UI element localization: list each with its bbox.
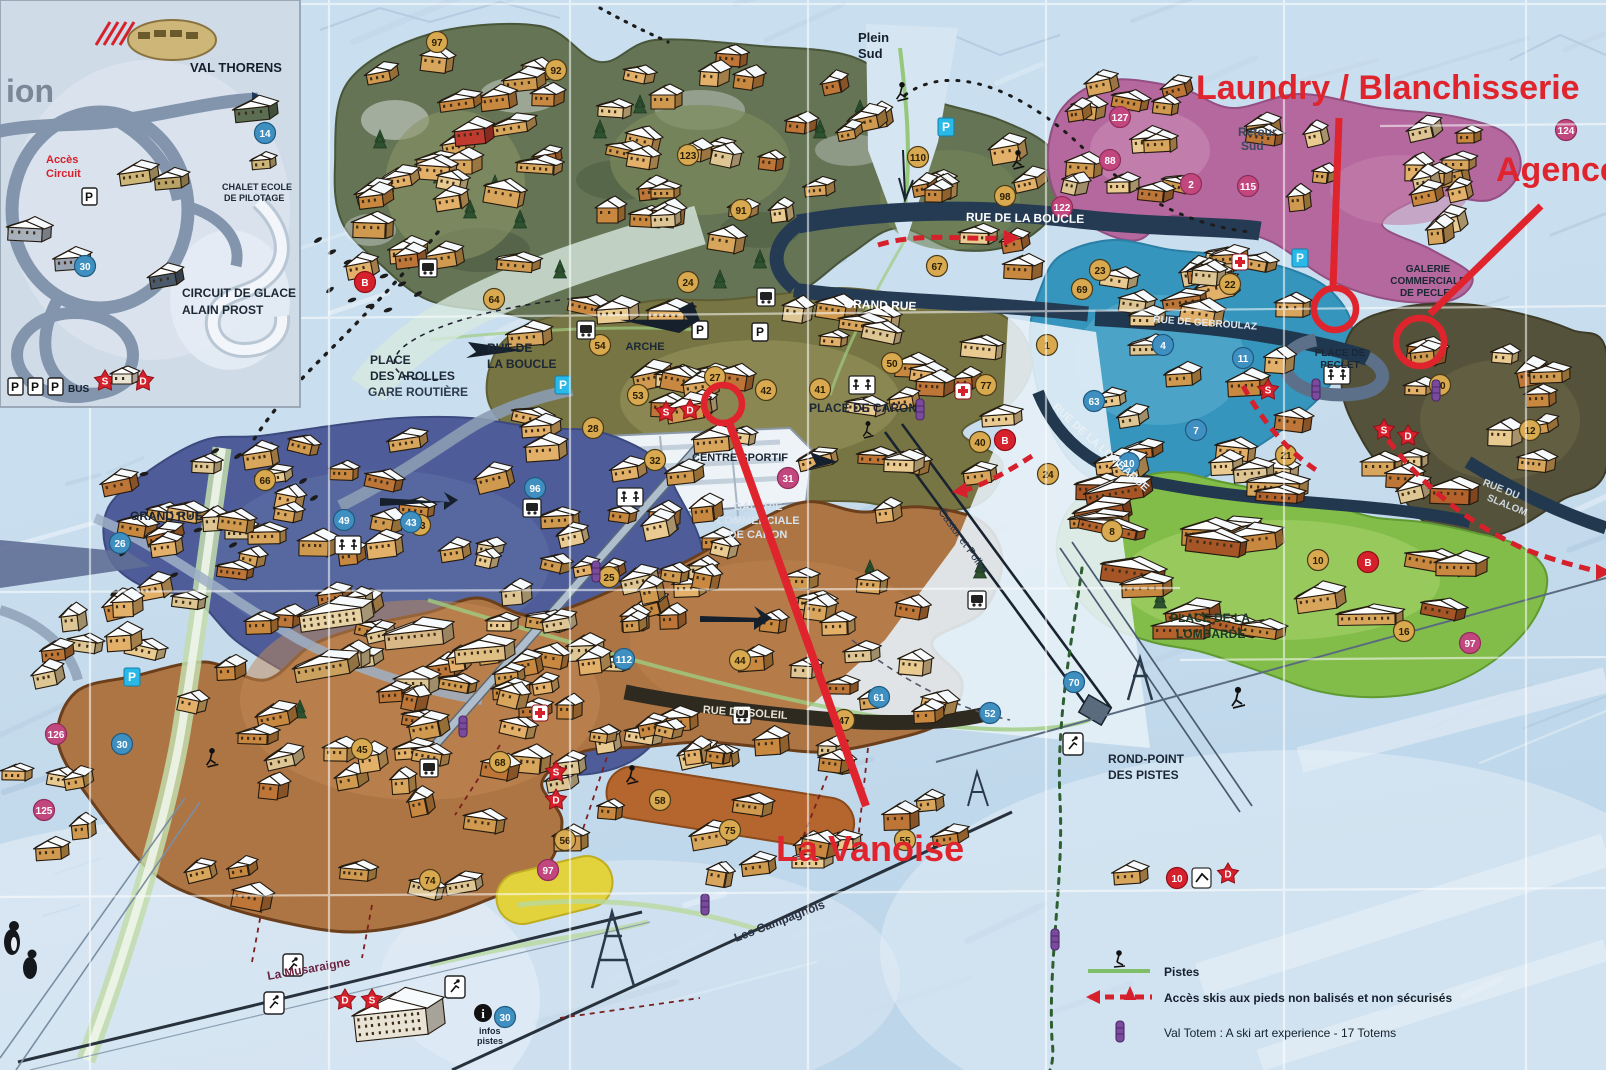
svg-text:64: 64 xyxy=(488,295,500,306)
svg-text:54: 54 xyxy=(594,341,606,352)
svg-text:67: 67 xyxy=(931,262,943,273)
svg-text:53: 53 xyxy=(632,391,644,402)
svg-text:74: 74 xyxy=(424,876,436,887)
svg-text:61: 61 xyxy=(873,693,885,704)
svg-text:pistes: pistes xyxy=(477,1036,503,1046)
svg-text:D: D xyxy=(1224,870,1231,881)
svg-text:D: D xyxy=(341,996,348,1007)
svg-text:91: 91 xyxy=(735,206,747,217)
svg-text:68: 68 xyxy=(494,758,506,769)
svg-text:58: 58 xyxy=(654,796,666,807)
svg-text:COMMERCIALE: COMMERCIALE xyxy=(716,515,799,527)
svg-text:S: S xyxy=(663,408,670,419)
svg-text:D: D xyxy=(686,406,693,417)
svg-text:45: 45 xyxy=(356,745,368,756)
svg-text:GARE ROUTIÈRE: GARE ROUTIÈRE xyxy=(368,384,468,399)
svg-text:P: P xyxy=(1296,251,1304,265)
svg-text:31: 31 xyxy=(782,474,794,485)
svg-text:Accès: Accès xyxy=(46,154,78,166)
svg-text:S: S xyxy=(102,377,109,388)
svg-text:P: P xyxy=(51,380,59,394)
svg-text:Agence: Agence xyxy=(1496,151,1606,189)
svg-text:GRAND RUE: GRAND RUE xyxy=(130,509,203,523)
svg-text:infos: infos xyxy=(479,1026,501,1036)
svg-text:97: 97 xyxy=(431,38,443,49)
svg-text:63: 63 xyxy=(1088,397,1100,408)
svg-text:Val Totem : A ski art experien: Val Totem : A ski art experience - 17 To… xyxy=(1164,1026,1396,1040)
svg-text:7: 7 xyxy=(1193,426,1199,437)
svg-text:PLACE: PLACE xyxy=(370,353,411,367)
svg-text:92: 92 xyxy=(550,66,562,77)
svg-text:96: 96 xyxy=(529,484,541,495)
svg-text:125: 125 xyxy=(36,806,53,817)
svg-text:D: D xyxy=(1404,432,1411,443)
svg-text:D: D xyxy=(139,377,146,388)
svg-text:49: 49 xyxy=(338,516,350,527)
svg-text:P: P xyxy=(756,325,764,339)
svg-text:P: P xyxy=(31,380,39,394)
svg-text:30: 30 xyxy=(499,1013,511,1024)
svg-text:16: 16 xyxy=(1398,627,1410,638)
svg-text:LOMBARDE: LOMBARDE xyxy=(1176,627,1245,641)
svg-text:Plein: Plein xyxy=(858,30,889,45)
svg-text:VAL THORENS: VAL THORENS xyxy=(190,60,282,75)
svg-text:43: 43 xyxy=(405,518,417,529)
svg-text:123: 123 xyxy=(680,151,697,162)
svg-text:42: 42 xyxy=(760,386,772,397)
svg-text:ARCHE: ARCHE xyxy=(625,341,664,353)
svg-text:66: 66 xyxy=(259,476,271,487)
svg-text:P: P xyxy=(559,378,567,392)
svg-text:GALERIE: GALERIE xyxy=(1406,264,1451,275)
svg-text:B: B xyxy=(1364,558,1371,569)
svg-text:22: 22 xyxy=(1224,280,1236,291)
svg-text:S: S xyxy=(1381,426,1388,437)
svg-text:26: 26 xyxy=(114,539,126,550)
svg-text:ROND-POINT: ROND-POINT xyxy=(1108,752,1185,766)
svg-text:RUE DE: RUE DE xyxy=(487,341,532,355)
svg-text:41: 41 xyxy=(814,385,826,396)
svg-text:40: 40 xyxy=(974,438,986,449)
svg-text:8: 8 xyxy=(1109,527,1115,538)
svg-text:97: 97 xyxy=(542,866,554,877)
svg-text:Pistes: Pistes xyxy=(1164,965,1200,979)
svg-text:P: P xyxy=(696,323,704,337)
svg-text:S: S xyxy=(1265,386,1272,397)
svg-text:10: 10 xyxy=(1312,556,1324,567)
svg-text:21: 21 xyxy=(1280,451,1292,462)
svg-text:10: 10 xyxy=(1171,874,1183,885)
svg-text:PLACE DE LA: PLACE DE LA xyxy=(1170,611,1250,625)
svg-text:La Vanoise: La Vanoise xyxy=(776,828,964,869)
svg-text:ion: ion xyxy=(6,73,54,109)
svg-text:S: S xyxy=(553,768,560,779)
svg-text:2: 2 xyxy=(1188,180,1194,191)
svg-text:Sud: Sud xyxy=(858,46,883,61)
svg-text:112: 112 xyxy=(616,655,633,666)
svg-text:14: 14 xyxy=(259,129,271,140)
svg-text:4: 4 xyxy=(1160,341,1166,352)
svg-text:BUS: BUS xyxy=(68,384,89,395)
svg-text:30: 30 xyxy=(116,740,128,751)
svg-text:25: 25 xyxy=(603,573,615,584)
svg-text:115: 115 xyxy=(1240,182,1257,193)
svg-text:127: 127 xyxy=(1112,113,1129,124)
svg-text:23: 23 xyxy=(1094,266,1106,277)
svg-text:Accès skis aux pieds non balis: Accès skis aux pieds non balisés et non … xyxy=(1164,991,1452,1005)
svg-text:11: 11 xyxy=(1238,354,1249,365)
svg-text:DES PISTES: DES PISTES xyxy=(1108,768,1179,782)
svg-text:P: P xyxy=(128,670,136,684)
svg-text:30: 30 xyxy=(79,262,91,273)
svg-text:Retour: Retour xyxy=(1238,125,1277,139)
svg-text:P: P xyxy=(942,120,950,134)
svg-text:75: 75 xyxy=(724,826,736,837)
svg-text:32: 32 xyxy=(649,456,661,467)
svg-text:126: 126 xyxy=(48,730,65,741)
svg-text:69: 69 xyxy=(1076,285,1088,296)
svg-text:CIRCUIT DE GLACE: CIRCUIT DE GLACE xyxy=(182,286,296,300)
svg-text:24: 24 xyxy=(1042,470,1054,481)
svg-text:B: B xyxy=(361,278,368,289)
svg-text:P: P xyxy=(11,380,19,394)
svg-text:Circuit: Circuit xyxy=(46,168,81,180)
svg-text:50: 50 xyxy=(886,359,898,370)
svg-text:77: 77 xyxy=(980,381,992,392)
svg-text:P: P xyxy=(85,190,93,204)
svg-text:28: 28 xyxy=(587,424,599,435)
svg-text:GRAND RUE: GRAND RUE xyxy=(844,297,917,314)
svg-text:S: S xyxy=(369,996,376,1007)
svg-text:DE PILOTAGE: DE PILOTAGE xyxy=(224,193,284,203)
svg-text:i: i xyxy=(481,1006,485,1021)
svg-text:110: 110 xyxy=(910,153,927,164)
svg-text:98: 98 xyxy=(999,192,1011,203)
svg-text:Laundry / Blanchisserie: Laundry / Blanchisserie xyxy=(1196,69,1580,107)
svg-text:D: D xyxy=(552,796,559,807)
svg-text:88: 88 xyxy=(1104,156,1116,167)
svg-text:70: 70 xyxy=(1068,678,1080,689)
svg-text:PLACE DE: PLACE DE xyxy=(1315,348,1366,359)
svg-text:DES AROLLES: DES AROLLES xyxy=(370,369,455,383)
svg-text:124: 124 xyxy=(1558,126,1575,137)
svg-text:Sud: Sud xyxy=(1241,139,1264,153)
svg-text:PECLET: PECLET xyxy=(1320,360,1359,371)
svg-text:LA BOUCLE: LA BOUCLE xyxy=(487,357,557,371)
svg-text:ALAIN PROST: ALAIN PROST xyxy=(182,303,264,317)
svg-text:RUE DE LA BOUCLE: RUE DE LA BOUCLE xyxy=(966,210,1084,226)
svg-text:PLACE DE CARON: PLACE DE CARON xyxy=(809,401,917,415)
svg-text:97: 97 xyxy=(1464,639,1476,650)
svg-text:B: B xyxy=(1001,436,1008,447)
svg-text:CHALET ECOLE: CHALET ECOLE xyxy=(222,182,292,192)
svg-text:44: 44 xyxy=(734,656,746,667)
svg-text:DE CARON: DE CARON xyxy=(729,529,788,541)
svg-text:24: 24 xyxy=(682,278,694,289)
svg-text:52: 52 xyxy=(984,709,996,720)
